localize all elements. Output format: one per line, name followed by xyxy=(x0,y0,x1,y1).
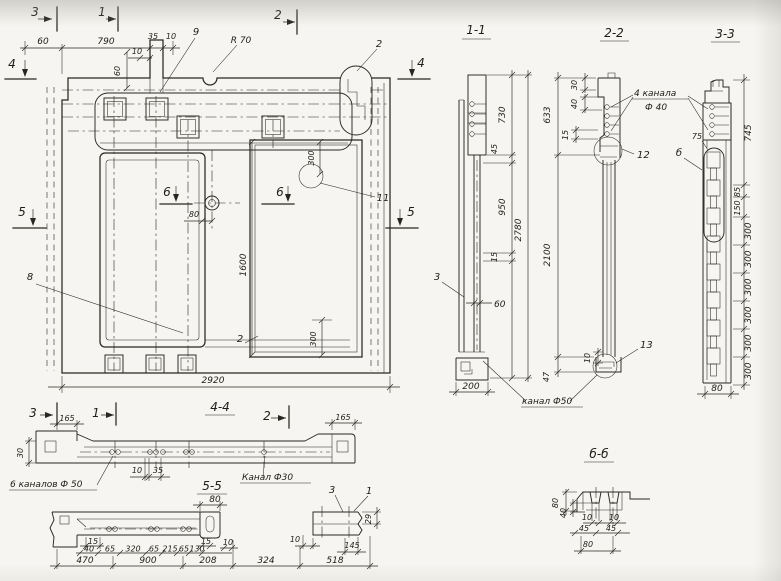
dim-30: 30 xyxy=(16,448,25,458)
mark-6-left: 6 xyxy=(163,185,171,199)
note-kanal-f50: канал Ф50 xyxy=(522,397,572,407)
item-label-2: 2 xyxy=(376,39,382,50)
section-b-b: б-б 80 40 10 10 45 45 80 xyxy=(551,447,650,554)
dim-1600: 1600 xyxy=(239,253,249,276)
dim-29: 29 xyxy=(364,514,373,524)
dim-10: 10 xyxy=(132,466,142,475)
dim-35: 35 xyxy=(153,466,163,475)
dim-15: 15 xyxy=(561,130,570,140)
shear-key-chain xyxy=(707,152,720,376)
dim-80-left: 80 xyxy=(551,498,560,508)
dim-10b: 10 xyxy=(132,47,142,56)
dim-320: 320 xyxy=(125,545,140,554)
dim-2780: 2780 xyxy=(514,218,524,241)
dim-15b: 15 xyxy=(201,537,211,546)
dim-300-3: 300 xyxy=(744,278,754,295)
item-label-12: 12 xyxy=(637,150,650,161)
item-label-1: 1 xyxy=(366,486,372,497)
item-label-8: 8 xyxy=(27,272,33,283)
dim-165-right: 165 xyxy=(335,413,350,422)
dim-324: 324 xyxy=(257,556,274,566)
dim-790: 790 xyxy=(97,37,114,47)
section-title-2-2: 2-2 xyxy=(604,26,624,40)
section-title-1-1: 1-1 xyxy=(466,23,486,37)
dim-215: 215 xyxy=(162,545,177,554)
end-block-outline xyxy=(313,512,362,535)
dim-300-bottom: 300 xyxy=(309,331,318,346)
dim-200: 200 xyxy=(462,382,479,392)
upper-recess xyxy=(95,93,352,150)
dim-60: 60 xyxy=(37,37,49,47)
vertical-center-lines xyxy=(114,96,273,371)
dim-40: 40 xyxy=(84,545,94,554)
dim-300-4: 300 xyxy=(744,306,754,323)
channel-holes xyxy=(470,102,486,137)
middle-recess-panel xyxy=(100,153,205,347)
dim-47: 47 xyxy=(542,371,551,382)
dim-45b: 45 xyxy=(606,524,616,533)
mark-2: 2 xyxy=(274,8,282,22)
section-5-5: 5-5 80 15 40 65 320 65 215 65 130 15 10 … xyxy=(50,479,381,569)
main-view: 3 1 2 4 4 5 5 6 6 60 790 35 10 10 60 80 … xyxy=(5,5,430,393)
item-label-3: 3 xyxy=(434,272,440,283)
channel-holes xyxy=(710,105,729,137)
detail-circle-12 xyxy=(594,137,622,165)
item-label-11: 11 xyxy=(377,193,390,204)
section-3-3: 3-3 745 85 150 300 300 300 300 300 300 8… xyxy=(676,27,754,399)
note-4-kanala: 4 канала xyxy=(634,89,676,99)
dim-85: 85 xyxy=(733,187,742,197)
dim-150: 150 xyxy=(733,200,742,215)
dim-300-2: 300 xyxy=(744,250,754,267)
dim-300-top: 300 xyxy=(307,150,316,165)
dim-80: 80 xyxy=(209,495,221,505)
item-label-9: 9 xyxy=(193,27,199,38)
bottom-feet xyxy=(105,355,196,373)
dim-30: 30 xyxy=(570,80,579,90)
mark-5-right: 5 xyxy=(407,205,415,219)
mark-5-left: 5 xyxy=(18,205,26,219)
dim-300-5: 300 xyxy=(744,334,754,351)
dim-45a: 45 xyxy=(579,524,589,533)
dim-80: 80 xyxy=(189,210,199,219)
dim-60-web: 60 xyxy=(494,300,506,310)
section-title-5-5: 5-5 xyxy=(202,479,222,493)
mark-1: 1 xyxy=(92,406,100,420)
item-label-2-door: 2 xyxy=(237,334,243,345)
adjacent-panel-dashes xyxy=(47,87,378,371)
dim-35: 35 xyxy=(148,32,158,41)
door-opening xyxy=(250,140,362,357)
dim-2920: 2920 xyxy=(202,376,225,386)
dim-40: 40 xyxy=(570,99,579,109)
dim-300-6: 300 xyxy=(744,362,754,379)
dim-10b: 10 xyxy=(609,513,619,522)
lifting-loop-element xyxy=(340,66,372,135)
mark-6-right: 6 xyxy=(276,185,284,199)
dim-10a: 10 xyxy=(582,513,592,522)
dim-300-1: 300 xyxy=(744,222,754,239)
detail-circle-11 xyxy=(299,164,323,188)
mark-1: 1 xyxy=(98,5,106,19)
dim-65c: 65 xyxy=(179,545,189,554)
mark-4-right: 4 xyxy=(417,56,425,70)
item-label-b: б xyxy=(676,147,682,159)
dim-80-bottom: 80 xyxy=(583,540,593,549)
mark-3: 3 xyxy=(29,406,37,420)
dim-45: 45 xyxy=(490,144,499,154)
dim-950: 950 xyxy=(498,198,508,215)
item-label-3: 3 xyxy=(329,485,335,496)
detail-circle-13 xyxy=(593,354,617,378)
section-title-3-3: 3-3 xyxy=(715,27,735,41)
section-title-4-4: 4-4 xyxy=(210,400,230,414)
dim-2100: 2100 xyxy=(543,243,553,266)
dim-145: 145 xyxy=(344,541,359,550)
profile-outline xyxy=(577,492,650,512)
dim-10: 10 xyxy=(583,353,592,363)
dim-65a: 65 xyxy=(105,545,115,554)
dim-730: 730 xyxy=(498,106,508,123)
dim-518: 518 xyxy=(326,556,343,566)
dim-ticks xyxy=(22,45,393,390)
item-label-13: 13 xyxy=(640,340,653,351)
dim-40: 40 xyxy=(559,508,568,518)
note-kanal-f30: Канал Ф30 xyxy=(242,473,293,483)
mark-2: 2 xyxy=(263,409,271,423)
dim-633: 633 xyxy=(543,106,553,123)
dim-65b: 65 xyxy=(149,545,159,554)
dim-208: 208 xyxy=(199,556,216,566)
section-2-2: 2-2 30 40 15 633 2100 10 47 12 13 4 кана… xyxy=(542,26,708,382)
section-4-4: 4-4 3 1 2 165 165 30 10 35 6 каналов Ф 5… xyxy=(9,400,362,490)
channel-holes xyxy=(605,105,619,137)
dim-10b: 10 xyxy=(290,535,300,544)
mark-3: 3 xyxy=(31,5,39,19)
technical-drawing-sheet: 3 1 2 4 4 5 5 6 6 60 790 35 10 10 60 80 … xyxy=(0,0,781,581)
dim-15: 15 xyxy=(490,252,499,262)
drawing-canvas: 3 1 2 4 4 5 5 6 6 60 790 35 10 10 60 80 … xyxy=(0,0,781,581)
section-title-b-b: б-б xyxy=(589,447,609,461)
dim-10a: 10 xyxy=(166,32,176,41)
dim-60v: 60 xyxy=(113,66,122,76)
mark-4-left: 4 xyxy=(8,57,16,71)
dim-80-bottom: 80 xyxy=(711,384,723,394)
radius-label-r70: R 70 xyxy=(231,36,252,46)
dim-470: 470 xyxy=(76,556,93,566)
dim-10r: 10 xyxy=(223,538,233,547)
dim-900: 900 xyxy=(139,556,156,566)
note-6-kanalov-f50: 6 каналов Ф 50 xyxy=(10,480,83,490)
profile-outline xyxy=(50,512,220,547)
dim-745: 745 xyxy=(744,124,754,141)
dim-75: 75 xyxy=(692,132,702,141)
note-f40: Ф 40 xyxy=(645,103,667,113)
dim-165-left: 165 xyxy=(59,414,74,423)
